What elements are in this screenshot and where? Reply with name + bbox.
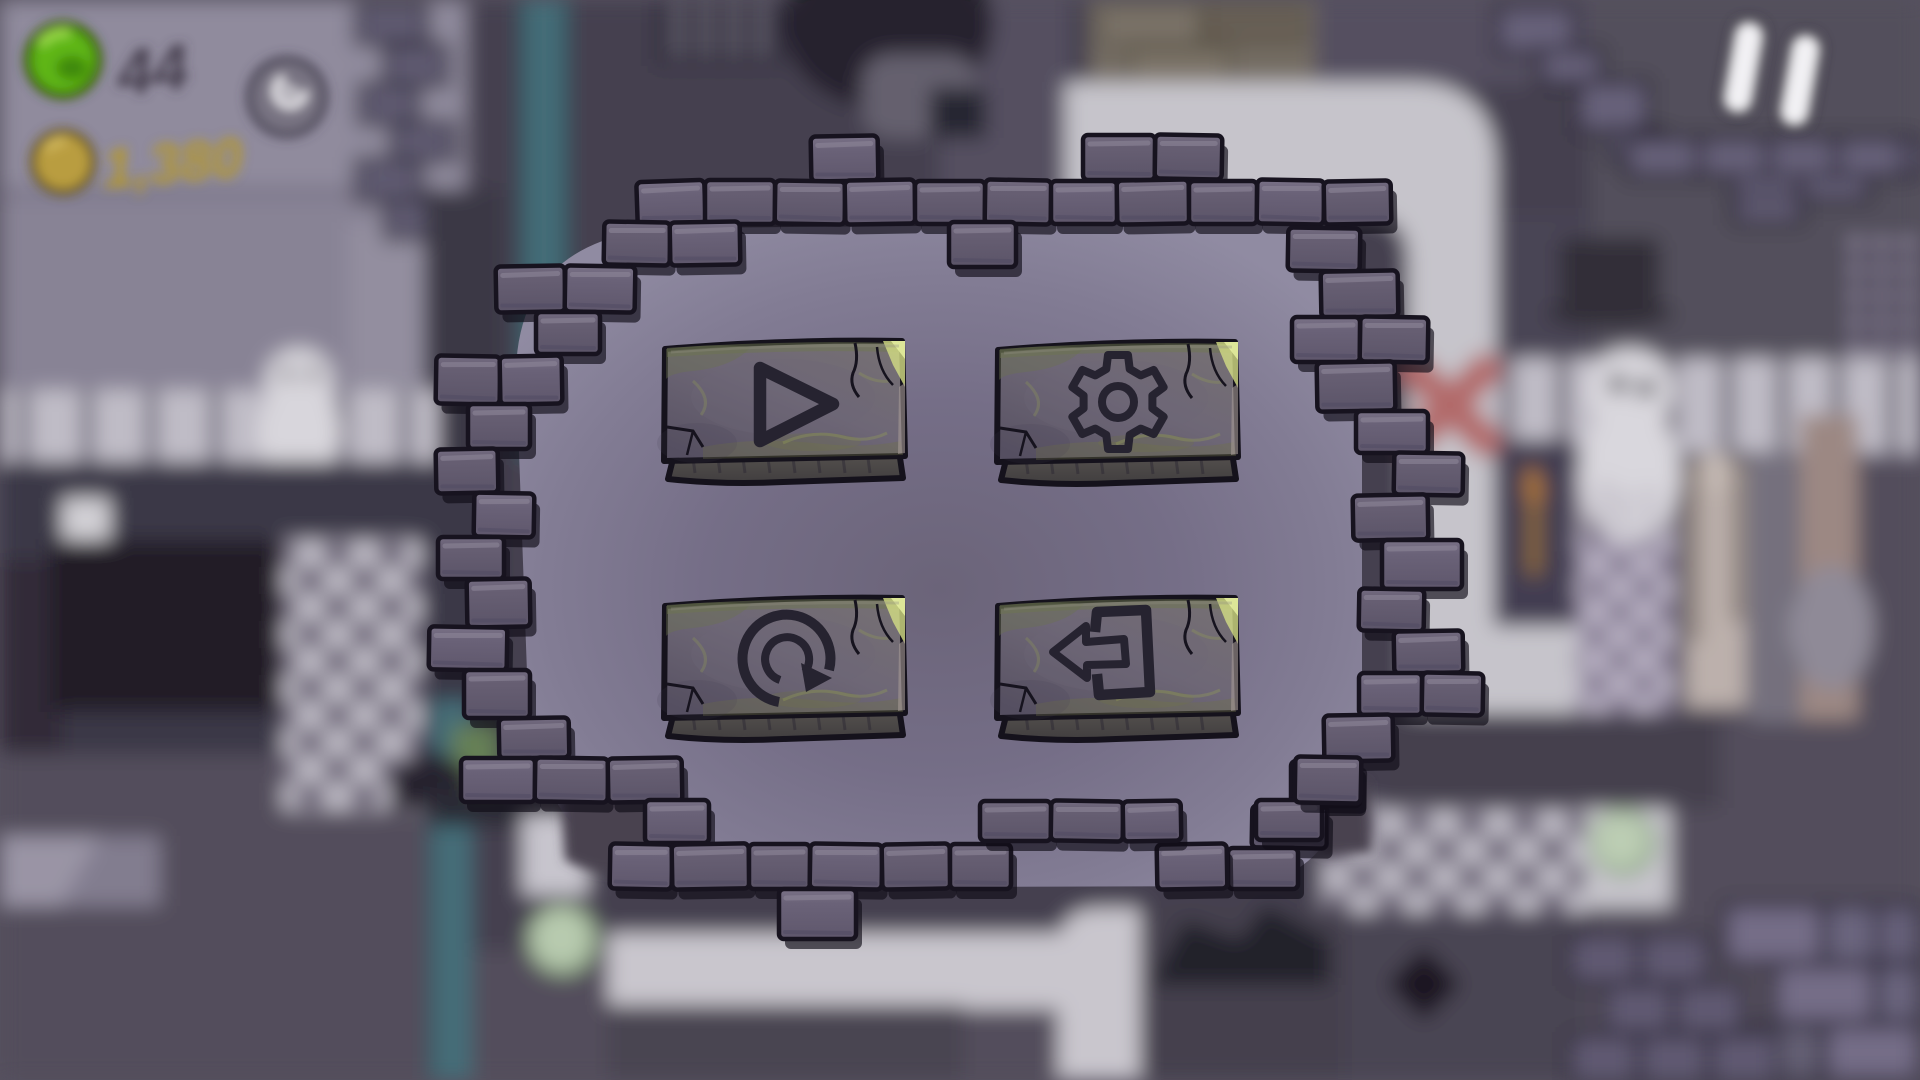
svg-text:1,380: 1,380 <box>100 125 245 200</box>
svg-text:44: 44 <box>111 30 191 109</box>
